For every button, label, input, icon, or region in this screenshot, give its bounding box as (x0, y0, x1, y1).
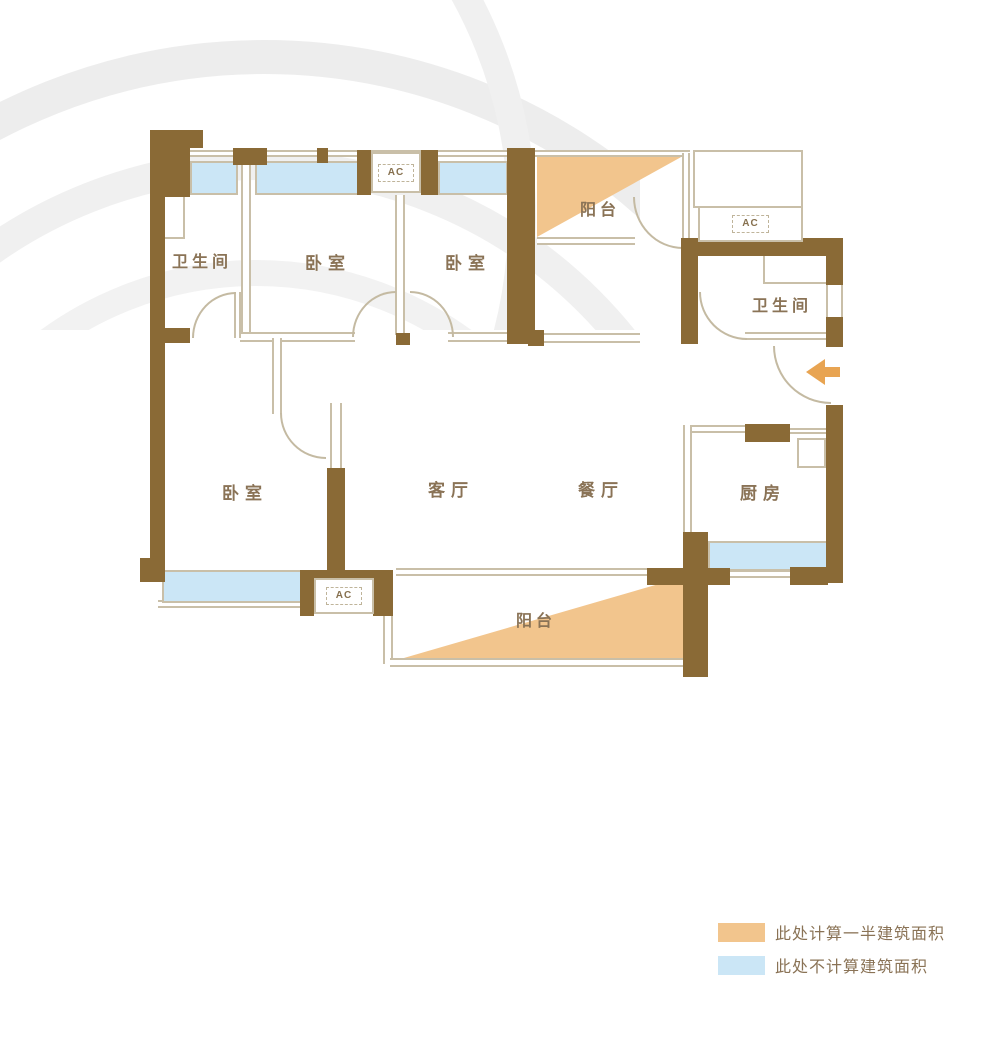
window-bedroom2 (438, 161, 508, 195)
wall-kitchen-top (745, 424, 790, 442)
fixture-shower-right (763, 256, 826, 284)
ac-platform-outline (693, 150, 803, 208)
wall-left (150, 150, 165, 582)
wall-bedroom2-balcony (507, 148, 535, 344)
window-sill (730, 570, 792, 578)
wall (647, 568, 730, 585)
wall-balcony-top-right (682, 153, 690, 250)
room-label-balcony-bottom: 阳台 (516, 607, 556, 631)
ac-label: AC (378, 164, 414, 182)
legend-row-half-area: 此处计算一半建筑面积 (718, 920, 945, 944)
wall (396, 333, 410, 345)
wall-balcony-right-pier (683, 532, 708, 677)
room-label-bedroom-top-2: 卧室 (445, 249, 491, 274)
ac-unit-top: AC (371, 152, 421, 193)
wall-mid (240, 332, 355, 342)
room-label-dining: 餐厅 (578, 476, 624, 501)
wall (150, 328, 190, 343)
wall-partition (241, 165, 251, 337)
window-bath-right (826, 283, 843, 319)
wall (357, 150, 371, 195)
legend-half-area-swatch (718, 923, 765, 942)
wall-kitchen-top-line (788, 428, 828, 434)
wall (327, 468, 345, 572)
window-bath-left (190, 161, 238, 195)
wall (300, 570, 314, 616)
wall-bath-right-bottom (745, 332, 828, 340)
room-label-kitchen: 厨房 (740, 479, 786, 504)
legend-row-no-area: 此处不计算建筑面积 (718, 953, 945, 977)
ac-unit-bottom: AC (314, 578, 374, 614)
wall-right (826, 317, 843, 347)
door-arc-balcony-top (633, 197, 683, 249)
entrance-arrow-icon (806, 358, 846, 386)
wall-right (826, 238, 843, 285)
entrance-arrow-head (806, 359, 825, 385)
wall-stub (330, 403, 342, 470)
wall-bath-right-left (681, 238, 698, 344)
fixture-niche-left-bath (165, 193, 185, 239)
wall (421, 150, 438, 195)
wall (233, 148, 267, 165)
room-label-living: 客厅 (428, 476, 474, 501)
wall-kitchen-left (683, 425, 692, 540)
door-arc-bath-right (699, 292, 747, 340)
fixture-kitchen-nook (797, 438, 826, 468)
entrance-arrow-tail (824, 367, 840, 377)
window-bedroom1 (255, 161, 359, 195)
wall-partition (395, 195, 405, 335)
door-arc-bedroom-left (280, 413, 326, 459)
wall-living-bottom (396, 568, 649, 576)
ac-label: AC (732, 215, 768, 233)
wall-kitchen-top-line (692, 425, 747, 433)
wall (317, 148, 328, 163)
wall (373, 570, 393, 616)
room-label-bath-top-left: 卫生间 (172, 248, 232, 272)
wall-balcony-top-bottom (537, 237, 635, 245)
room-label-bath-right: 卫生间 (752, 292, 812, 316)
ac-label: AC (326, 587, 362, 605)
floor-plan-page: AC AC AC 卫生间 卧室 卧室 阳台 卫生间 卧室 客厅 餐厅 厨房 阳台… (0, 0, 1000, 1062)
wall (528, 330, 544, 346)
wall-stub (272, 338, 282, 414)
wall-right (826, 405, 843, 583)
room-label-bedroom-left: 卧室 (222, 479, 268, 504)
wall (140, 558, 165, 582)
room-label-balcony-top: 阳台 (580, 196, 620, 220)
wall (790, 567, 828, 585)
wall-hall (543, 333, 640, 343)
ac-unit-right: AC (698, 206, 803, 242)
legend-no-area-label: 此处不计算建筑面积 (775, 953, 928, 977)
window-bedroom-left (162, 570, 302, 603)
legend-half-area-label: 此处计算一半建筑面积 (775, 920, 945, 944)
wall-balcony-bottom-left (383, 612, 393, 664)
room-label-bedroom-top-1: 卧室 (305, 249, 351, 274)
legend: 此处计算一半建筑面积 此处不计算建筑面积 (718, 920, 945, 986)
wall-balcony-bottom-edge (390, 658, 686, 667)
legend-no-area-swatch (718, 956, 765, 975)
